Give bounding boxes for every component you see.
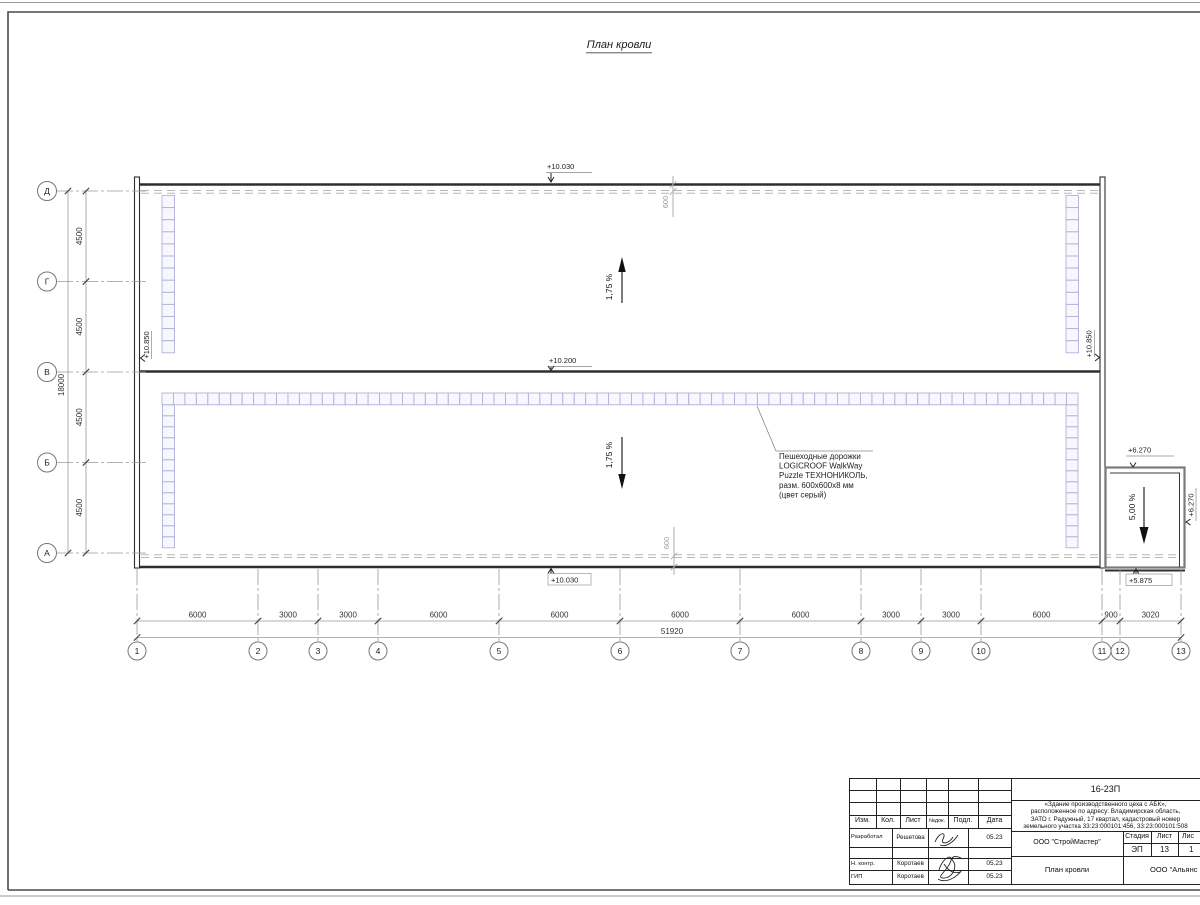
- walkway-tile: [219, 393, 230, 405]
- walkway-tile: [163, 526, 175, 537]
- row-dim-label: 4500: [75, 227, 84, 245]
- walkway-tile: [1066, 244, 1079, 256]
- walkway-tile: [609, 393, 620, 405]
- walkway-tile: [1021, 393, 1032, 405]
- walkway-tile: [1066, 416, 1078, 427]
- walkway-tile: [448, 393, 459, 405]
- walkway-tile: [345, 393, 356, 405]
- row-axis-label: Г: [45, 277, 50, 287]
- walkway-tile: [689, 393, 700, 405]
- title-block: Изм. Кол. Лист №док. Подл. Дата Разработ…: [849, 778, 1200, 885]
- walkway-tile: [163, 438, 175, 449]
- walkway-tile: [597, 393, 608, 405]
- elevation-label: +10.200: [549, 356, 576, 365]
- walkway-tile: [288, 393, 299, 405]
- walkway-tile: [803, 393, 814, 405]
- walkway-tile: [563, 393, 574, 405]
- tb-col-data: Дата: [978, 815, 1011, 828]
- walkway-tile: [757, 393, 768, 405]
- walkway-tile: [1066, 460, 1078, 471]
- elevation-label: +10.850: [1085, 330, 1094, 357]
- walkway-tile: [391, 393, 402, 405]
- slope-label: 1,75 %: [604, 273, 614, 300]
- tb-doc-number: 16-23П: [1011, 778, 1200, 800]
- note-leader-line: [757, 406, 873, 451]
- wall-right: [1100, 177, 1105, 568]
- row-axis-label: В: [44, 367, 50, 377]
- elevation-annex-right: +6.270: [1186, 488, 1196, 525]
- col-dim-label: 3000: [942, 611, 960, 620]
- column-axis-label: 10: [976, 646, 986, 656]
- tb-col-ndok: №док.: [926, 815, 948, 828]
- walkway-tile: [163, 515, 175, 526]
- col-dim-label: 3020: [1142, 611, 1160, 620]
- note-line: Пешеходные дорожки: [779, 452, 861, 461]
- walkway-tile: [471, 393, 482, 405]
- walkway-tile: [792, 393, 803, 405]
- walkway-tile: [162, 268, 175, 280]
- walkway-tile: [1066, 268, 1079, 280]
- walkway-tile: [162, 329, 175, 341]
- walkway-tile: [1066, 427, 1078, 438]
- walkway-tile: [746, 393, 757, 405]
- tb-drawing-name: План кровли: [1011, 856, 1123, 884]
- walkway-tile: [163, 537, 175, 548]
- walkway-tile: [941, 393, 952, 405]
- tb-role: Разработал: [851, 828, 892, 847]
- walkway-tile: [163, 427, 175, 438]
- walkway-tile: [1066, 329, 1079, 341]
- elevation-parapet-right: +10.850: [1085, 330, 1100, 361]
- walkway-tile: [311, 393, 322, 405]
- walkway-tile: [334, 393, 345, 405]
- walkway-tile: [677, 393, 688, 405]
- slope-arrow-lower: 1,75 %: [604, 437, 626, 489]
- walkway-tile: [368, 393, 379, 405]
- walkway-tile: [163, 471, 175, 482]
- walkway-tile: [494, 393, 505, 405]
- walkway-tile: [163, 449, 175, 460]
- tb-name: Решетова: [893, 828, 928, 847]
- walkway-tile: [986, 393, 997, 405]
- annex-outline: [1106, 468, 1185, 568]
- walkway-tile: [162, 244, 175, 256]
- parapet-offset-dim-top: 600: [661, 176, 676, 217]
- col-dim-label: 6000: [189, 611, 207, 620]
- walkway-tile: [826, 393, 837, 405]
- row-dim-label: 4500: [75, 498, 84, 516]
- row-axis-label: Д: [44, 186, 50, 196]
- row-axis-label: А: [44, 548, 50, 558]
- elevation-label: +5.875: [1129, 576, 1152, 585]
- walkway-tile: [414, 393, 425, 405]
- walkway-tile: [528, 393, 539, 405]
- walkway-tile: [1066, 449, 1078, 460]
- walkway-tile: [1067, 393, 1078, 405]
- row-total-dim-label: 18000: [57, 373, 66, 396]
- slope-arrow-upper: 1,75 %: [604, 257, 626, 303]
- walkway-tile: [1066, 526, 1078, 537]
- signature: [938, 857, 962, 881]
- walkway-tile: [849, 393, 860, 405]
- col-dim-label: 3000: [279, 611, 297, 620]
- walkway-tile: [1032, 393, 1043, 405]
- note-line: Puzzle ТЕХНОНИКОЛЬ,: [779, 471, 868, 480]
- col-dim-label: 6000: [551, 611, 569, 620]
- tb-sheets-value: 1: [1189, 843, 1200, 856]
- walkway-tile: [895, 393, 906, 405]
- roof-plan-drawing: План кровли ДГВБА 12345678910111213 4500…: [0, 0, 1200, 900]
- parapet-offset-bottom-label: 600: [662, 537, 671, 550]
- walkway-tile: [162, 220, 175, 232]
- column-axis-label: 6: [618, 646, 623, 656]
- annex-inner-wall: [1110, 473, 1180, 567]
- walkway-tile: [425, 393, 436, 405]
- column-axis-label: 5: [497, 646, 502, 656]
- walkway-tile: [964, 393, 975, 405]
- tb-name: Коротаев: [893, 870, 928, 884]
- walkway-tile: [506, 393, 517, 405]
- walkway-tile: [1066, 438, 1078, 449]
- walkway-tile: [1055, 393, 1066, 405]
- walkway-tile: [1066, 292, 1079, 304]
- col-total-dim-label: 51920: [661, 627, 684, 636]
- slope-label: 5,00 %: [1127, 493, 1137, 520]
- col-dim-label: 6000: [671, 611, 689, 620]
- walkway-tile: [162, 393, 173, 405]
- walkway-tile: [1066, 317, 1079, 329]
- walkway-tile: [540, 393, 551, 405]
- walkway-tile: [208, 393, 219, 405]
- slope-label: 1,75 %: [604, 441, 614, 468]
- wall-left: [135, 177, 140, 568]
- walkway-tile: [1066, 341, 1079, 353]
- tb-stage-value: ЭП: [1123, 843, 1151, 856]
- walkway-tile: [517, 393, 528, 405]
- walkway-tile: [163, 504, 175, 515]
- walkway-tile: [380, 393, 391, 405]
- walkway-tile: [1066, 493, 1078, 504]
- note-line: LOGICROOF WalkWay: [779, 462, 862, 471]
- walkway-tile: [231, 393, 242, 405]
- walkway-tile: [196, 393, 207, 405]
- note-line: (цвет серый): [779, 490, 827, 499]
- elevation-roof-valley: +10.200: [548, 356, 592, 371]
- walkway-tile: [357, 393, 368, 405]
- tb-role: ГИП: [851, 870, 892, 884]
- row-axes: ДГВБА: [38, 182, 147, 563]
- walkway-tile: [437, 393, 448, 405]
- walkway-tile: [735, 393, 746, 405]
- walkway-tile: [173, 393, 184, 405]
- walkway-tile: [254, 393, 265, 405]
- col-dim-label: 3000: [882, 611, 900, 620]
- elevation-roof-top: +10.030: [546, 162, 592, 182]
- col-dim-label: 6000: [1033, 611, 1051, 620]
- walkway-tile: [242, 393, 253, 405]
- walkway-tile: [906, 393, 917, 405]
- walkway-tile: [162, 317, 175, 329]
- column-axis-label: 7: [738, 646, 743, 656]
- walkway-tile: [277, 393, 288, 405]
- walkway-tile: [998, 393, 1009, 405]
- tb-sheets-label: Лис: [1182, 831, 1200, 843]
- tb-name: Коротаев: [893, 858, 928, 870]
- walkway-tile: [574, 393, 585, 405]
- signature-scribbles: [927, 828, 971, 885]
- slope-arrow-annex: 5,00 %: [1127, 487, 1149, 544]
- tb-date: 05.23: [978, 870, 1011, 884]
- walkway-tile: [299, 393, 310, 405]
- tb-contractor: ООО "Альянс: [1150, 856, 1200, 884]
- column-dimension-chain: 6000300030006000600060006000300030006000…: [134, 611, 1184, 641]
- walkway-tile: [712, 393, 723, 405]
- column-axis-label: 1: [135, 646, 140, 656]
- walkway-tile: [952, 393, 963, 405]
- note-line: разм. 600x600x8 мм: [779, 481, 854, 490]
- tb-sheet-label: Лист: [1151, 831, 1178, 843]
- tb-sheet-value: 13: [1151, 843, 1178, 856]
- col-dim-label: 900: [1104, 611, 1118, 620]
- walkway-tile: [162, 196, 175, 208]
- elevation-annex-top: +6.270: [1126, 446, 1174, 467]
- col-dim-label: 3000: [339, 611, 357, 620]
- walkway-tile: [620, 393, 631, 405]
- tb-project-description: «Здание производственного цеха с АБК», р…: [1013, 800, 1198, 831]
- col-dim-label: 6000: [792, 611, 810, 620]
- signature: [935, 834, 958, 846]
- walkway-tile: [322, 393, 333, 405]
- walkway-tile: [643, 393, 654, 405]
- walkway-tile: [1066, 220, 1079, 232]
- walkway-tile: [883, 393, 894, 405]
- walkway-tile: [780, 393, 791, 405]
- walkway-tile: [185, 393, 196, 405]
- walkway-tile: [1066, 280, 1079, 292]
- walkway-tile: [1066, 304, 1079, 316]
- walkway-note: Пешеходные дорожки LOGICROOF WalkWay Puz…: [757, 406, 873, 499]
- elevation-label: +6.270: [1187, 493, 1196, 516]
- column-axis-label: 9: [919, 646, 924, 656]
- walkway-tile: [163, 482, 175, 493]
- elevation-label: +10.030: [551, 575, 578, 584]
- elevation-label: +10.850: [142, 331, 151, 358]
- tb-col-izm: Изм.: [849, 815, 876, 828]
- parapet-offset-top-label: 600: [661, 196, 670, 209]
- elevation-label: +10.030: [547, 162, 574, 171]
- tb-date: 05.23: [978, 828, 1011, 847]
- sheet-title: План кровли: [587, 39, 652, 51]
- walkway-tile: [723, 393, 734, 405]
- walkway-tile: [162, 208, 175, 220]
- column-axis-label: 3: [316, 646, 321, 656]
- col-dim-label: 6000: [430, 611, 448, 620]
- walkway-tile: [162, 280, 175, 292]
- column-axis-label: 13: [1176, 646, 1186, 656]
- walkway-tile: [1066, 232, 1079, 244]
- tb-col-kol: Кол.: [876, 815, 900, 828]
- walkway-tile: [1066, 471, 1078, 482]
- walkway-tile: [769, 393, 780, 405]
- walkway-tile: [402, 393, 413, 405]
- column-axis-label: 2: [256, 646, 261, 656]
- walkway-tile: [265, 393, 276, 405]
- column-axis-label: 4: [376, 646, 381, 656]
- tb-col-podl: Подл.: [948, 815, 978, 828]
- walkway-tile: [1066, 196, 1079, 208]
- walkway-tile: [700, 393, 711, 405]
- walkway-tile: [929, 393, 940, 405]
- elevation-roof-bottom: +10.030: [548, 569, 591, 586]
- walkway-tile: [838, 393, 849, 405]
- walkway-tile: [1044, 393, 1055, 405]
- walkway-tile: [460, 393, 471, 405]
- walkway-tile: [163, 460, 175, 471]
- elevation-parapet-left: +10.850: [141, 331, 152, 362]
- walkway-tile: [551, 393, 562, 405]
- walkway-tile: [586, 393, 597, 405]
- walkway-tile: [162, 292, 175, 304]
- walkway-tile: [1066, 537, 1078, 548]
- walkway-tile: [860, 393, 871, 405]
- walkway-tile: [1066, 504, 1078, 515]
- tb-design-org: ООО "СтройМастер": [1011, 831, 1123, 856]
- row-dim-label: 4500: [75, 317, 84, 335]
- walkway-tile: [654, 393, 665, 405]
- column-axis-label: 12: [1115, 646, 1125, 656]
- tb-date: 05.23: [978, 858, 1011, 870]
- walkway-tile: [483, 393, 494, 405]
- elevation-label: +6.270: [1128, 446, 1151, 455]
- walkway-tile: [1009, 393, 1020, 405]
- walkway-tile: [162, 232, 175, 244]
- walkway-tile: [1066, 208, 1079, 220]
- tb-stage-label: Стадия: [1123, 831, 1151, 843]
- walkway-tile: [163, 493, 175, 504]
- walkway-tile: [1066, 515, 1078, 526]
- walkway-tile: [1066, 405, 1078, 416]
- walkway-tile: [162, 304, 175, 316]
- walkway-tile: [1066, 482, 1078, 493]
- tb-col-list: Лист: [900, 815, 926, 828]
- walkway-tile: [666, 393, 677, 405]
- walkway-tile: [162, 341, 175, 353]
- walkway-tile: [631, 393, 642, 405]
- walkway-tile: [1066, 256, 1079, 268]
- walkway-tile: [975, 393, 986, 405]
- drawing-sheet: План кровли ДГВБА 12345678910111213 4500…: [0, 0, 1200, 900]
- walkway-tile: [163, 405, 175, 416]
- walkway-tile: [163, 416, 175, 427]
- walkway-tile: [815, 393, 826, 405]
- column-axis-label: 11: [1098, 646, 1107, 656]
- column-axis-label: 8: [859, 646, 864, 656]
- tb-role: Н. контр.: [851, 858, 892, 870]
- walkway-tile: [162, 256, 175, 268]
- walkway-tile: [872, 393, 883, 405]
- walkway-tile: [918, 393, 929, 405]
- row-dim-label: 4500: [75, 408, 84, 426]
- row-axis-label: Б: [44, 458, 50, 468]
